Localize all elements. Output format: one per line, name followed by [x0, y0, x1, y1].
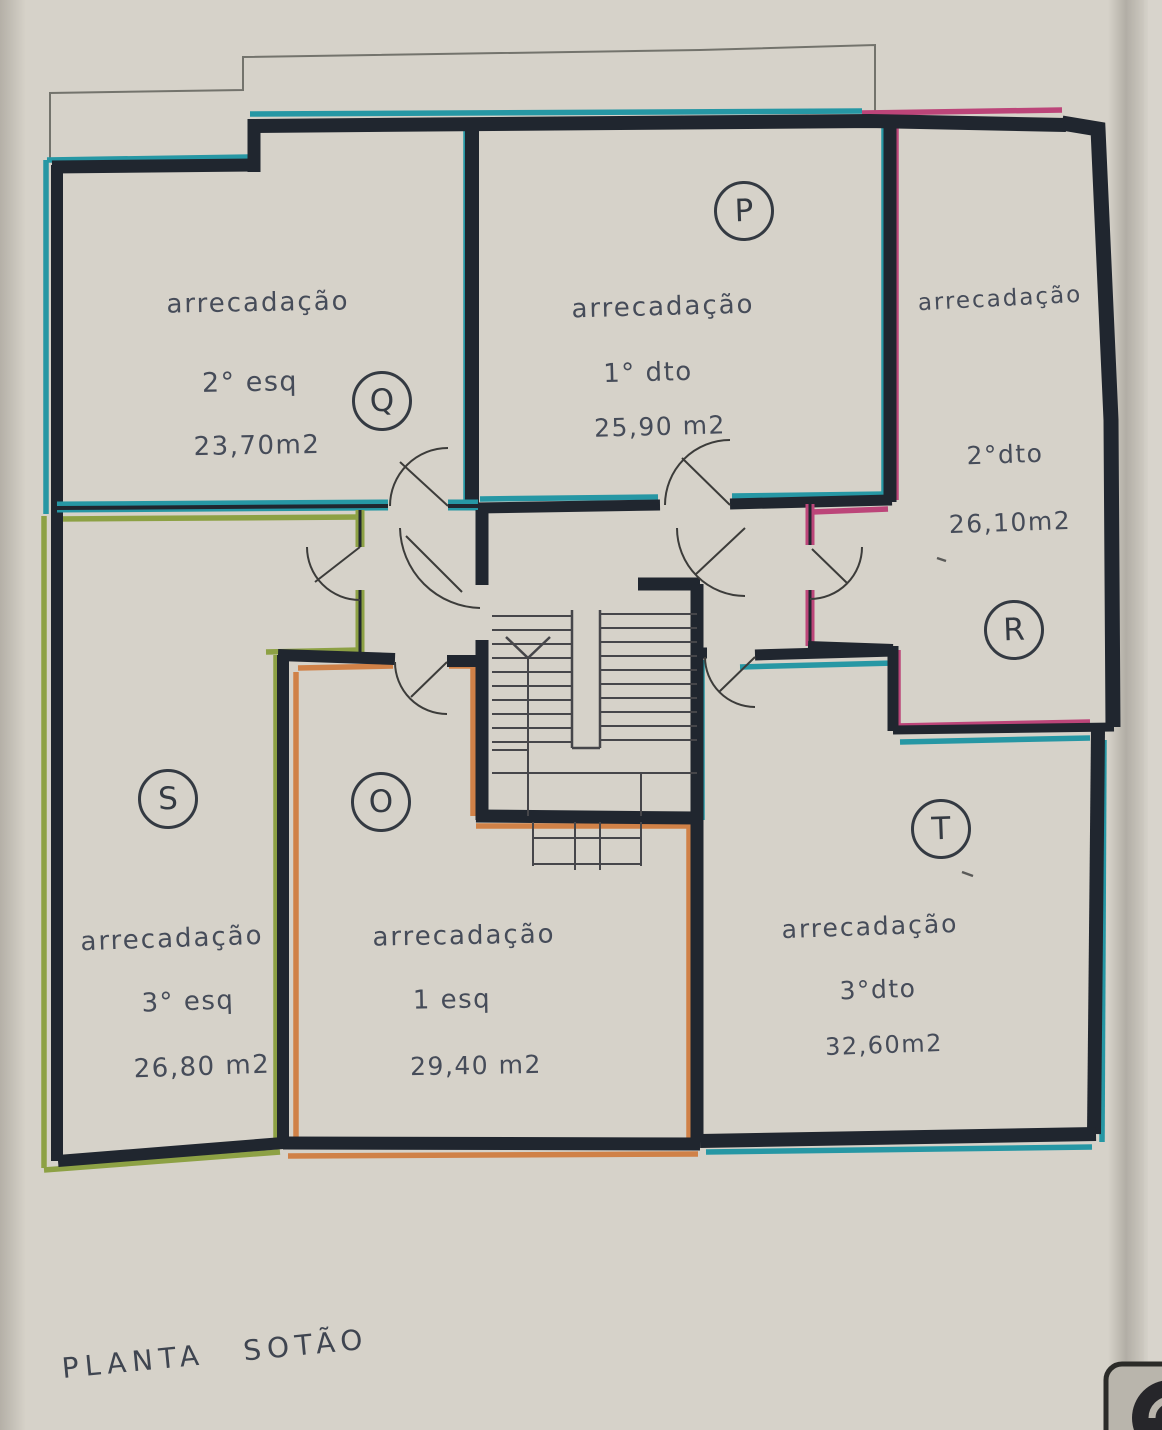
room-q-area: 23,70m2	[147, 429, 367, 463]
paper-background	[0, 0, 1162, 1430]
floor-plan-drawing	[0, 0, 1162, 1430]
room-o-name: arrecadação	[324, 919, 604, 954]
room-q-floor: 2° esq	[140, 365, 361, 400]
room-q-name: arrecadação	[118, 286, 398, 321]
scanned-floor-plan-page: Q arrecadação 2° esq 23,70m2 P arrecadaç…	[0, 0, 1162, 1430]
room-p-area: 25,90 m2	[550, 409, 771, 444]
room-o-area: 29,40 m2	[366, 1049, 586, 1082]
room-o-floor: 1 esq	[342, 983, 562, 1017]
corner-logo	[1106, 1364, 1162, 1430]
room-p-floor: 1° dto	[538, 355, 759, 391]
